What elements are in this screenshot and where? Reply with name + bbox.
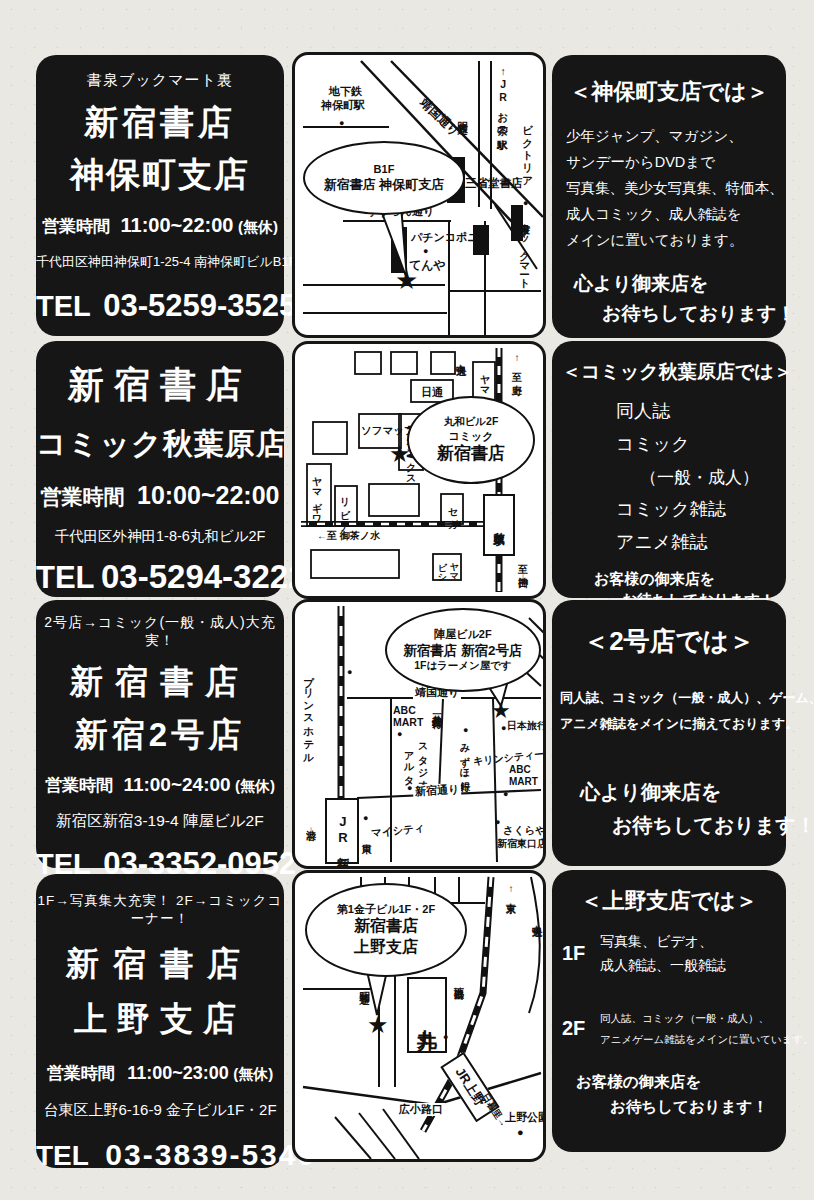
pachinko-dot: ● xyxy=(423,247,428,256)
desc-item: アニメ雑誌 xyxy=(562,526,776,559)
balloon-floor: B1F xyxy=(374,162,395,176)
map-label-shinjuku-dori: 新宿通り xyxy=(413,783,462,798)
store-tagline: 2号店→コミック(一般・成人)大充実！ xyxy=(36,614,284,650)
mycity-dot: ● xyxy=(363,814,368,823)
store-location-star: ★ xyxy=(389,442,411,466)
abc-mart2-dot: ● xyxy=(503,790,508,799)
floor2-line: アニメゲーム雑誌をメインに置いています。 xyxy=(600,1029,814,1050)
map-label-subway-line: 地下鉄 xyxy=(329,85,362,98)
map-label-shosen-bookmart: 書泉ブックマート xyxy=(519,215,531,283)
hours-value: 11:00~22:00 xyxy=(121,214,234,236)
map-label-yamabishi-1: ヤマ xyxy=(449,556,459,579)
map-balloon-jimbocho: B1F 新宿書店 神保町支店 xyxy=(303,141,465,215)
map-label-yamabishi-2: ビシ xyxy=(437,556,447,578)
balloon-note: 1Fはラーメン屋です xyxy=(414,659,512,673)
ueno-park-dot: ● xyxy=(517,1127,524,1138)
store-name-line1: 新宿書店 xyxy=(36,361,284,410)
balloon-store-name: 新宿書店 新宿2号店 xyxy=(403,642,522,660)
map-label-akihabara-station: 秋葉原駅 xyxy=(493,523,506,527)
hours-label: 営業時間 xyxy=(42,217,110,236)
balloon-building: 丸和ビル2F xyxy=(444,415,499,429)
closing-line2: お待ちしております！ xyxy=(566,301,772,327)
map-label-to-ochanomizu: ←至 御茶ノ水 xyxy=(317,530,380,542)
map-label-ueno-park: 上野公園 xyxy=(505,1111,546,1124)
hours-value: 11:00~24:00 xyxy=(123,774,230,795)
hours-note: (無休) xyxy=(235,777,275,794)
tel-label: TEL xyxy=(36,1140,89,1171)
prince-dot: ● xyxy=(347,668,352,677)
map-label-jr-shinjuku: JR新宿 xyxy=(335,814,350,848)
map-label-pachinko-pony: パチンコポニー xyxy=(411,231,490,244)
map-label-nittsu: 日通 xyxy=(421,386,443,399)
map-label-mizuho-bank: みずほ銀行 xyxy=(459,736,471,775)
desc-line: アニメ雑誌をメインに揃えております。 xyxy=(560,711,778,737)
closing-line1: 心より御来店を xyxy=(566,271,772,297)
desc-heading: ＜神保町支店では＞ xyxy=(566,77,772,107)
store-location-star: ★ xyxy=(367,1013,389,1037)
map-label-showa-dori: 昭和通り xyxy=(359,983,371,999)
tel-label: TEL xyxy=(36,560,95,595)
store-name-line2: 神保町支店 xyxy=(36,152,284,198)
store-address: 新宿区新宿3-19-4 陣屋ビル2F xyxy=(36,811,284,832)
balloon-store-name: 新宿書店 xyxy=(437,443,505,465)
hours-value: 10:00~22:00 xyxy=(137,481,279,509)
map-label-nihon-ryoko: 日本旅行 xyxy=(507,720,546,732)
mizuho-dot: ● xyxy=(463,726,468,735)
closing-line1: お客様の御来店を xyxy=(562,570,776,589)
store-address: 千代田区神田神保町1-25-4 南神保町ビルB1F xyxy=(36,253,284,271)
closing-line2: お待ちしております！ xyxy=(562,1097,776,1118)
map-label-mitsui-sumitomo-bank: 三井住友銀行 xyxy=(431,706,443,712)
hours-label: 営業時間 xyxy=(47,1064,115,1083)
store-info-panel-ueno: 1F→写真集大充実！ 2F→コミックコーナー！ 新宿書店 上野支店 営業時間 1… xyxy=(36,874,284,1168)
map-label-sakuraya-branch: 新宿東口店 xyxy=(497,838,546,850)
desc-item: コミック雑誌 xyxy=(562,493,776,526)
floor1-line: 写真集、ビデオ、 xyxy=(600,930,726,954)
desc-line: メインに置いております。 xyxy=(566,227,772,253)
balloon-building: 第1金子ビル1F・2F xyxy=(337,902,435,916)
store-tagline: 1F→写真集大充実！ 2F→コミックコーナー！ xyxy=(36,892,284,928)
map-balloon-shinjuku2: 陣屋ビル2F 新宿書店 新宿2号店 1Fはラーメン屋です xyxy=(385,608,541,692)
map-ueno: 第1金子ビル1F・2F 新宿書店 上野支店 昭和通り 丸井 地下鉄出口 ● ↑東… xyxy=(292,870,546,1162)
tel-number: 03-5259-3525 xyxy=(103,288,296,323)
desc-item: 同人誌 xyxy=(562,395,776,428)
tel-number: 03-5294-3222 xyxy=(101,558,307,595)
map-label-jr-ochanomizu: ↑JRお茶の水駅 xyxy=(497,65,509,133)
desc-heading: ＜2号店では＞ xyxy=(560,624,778,659)
floor1-label: 1F xyxy=(562,942,600,965)
desc-heading: ＜上野支店では＞ xyxy=(562,886,776,916)
closing-line1: お客様の御来店を xyxy=(562,1072,776,1093)
map-label-marui: 丸井 xyxy=(416,1014,439,1016)
alta-dot: ● xyxy=(407,784,412,793)
map-label-chuo-dori: 中央通 xyxy=(455,356,467,359)
subway-exit-dot: ● xyxy=(443,1033,448,1042)
store-name-line1: 新宿書店 xyxy=(36,100,284,146)
hours-note: (無休) xyxy=(238,218,278,235)
desc-line: 成人コミック、成人雑誌を xyxy=(566,201,772,227)
map-label-abc-mart-2a: ABC xyxy=(509,764,531,776)
store-name-line2: コミック秋葉原店 xyxy=(36,424,284,465)
desc-line: サンデーからDVDまで xyxy=(566,149,772,175)
map-shinjuku2: プリンスホテル ● 靖国通り ABC MART ● 三井住友銀行 スタジオ アル… xyxy=(292,599,546,869)
map-label-to-kanda: 至 神田↓ xyxy=(517,556,529,583)
map-label-subway-exit: 地下鉄出口 xyxy=(453,979,465,984)
map-label-yamagiwa-left: ヤマギワ xyxy=(311,470,323,520)
map-label-victoria: ビクトリア xyxy=(522,117,534,182)
map-balloon-akihabara: 丸和ビル2F コミック 新宿書店 xyxy=(407,396,535,484)
tel-number: 03-3839-5340 xyxy=(105,1138,316,1171)
desc-line: 同人誌、コミック（一般・成人）、ゲーム、 xyxy=(560,685,778,711)
map-label-higashiguchi: 東口 xyxy=(361,836,373,838)
floor1-line: 成人雑誌、一般雑誌 xyxy=(600,954,726,978)
balloon-store-name: 新宿書店 xyxy=(354,916,418,937)
map-balloon-ueno: 第1金子ビル1F・2F 新宿書店 上野支店 xyxy=(305,883,467,977)
map-label-meidai-dori: 明大通り xyxy=(457,113,469,129)
map-jimbocho: 地下鉄 神保町駅 ● 靖国通り ↑JRお茶の水駅 明大通り ビクトリア ● 三省… xyxy=(292,52,546,338)
desc-item: （一般・成人） xyxy=(562,462,776,493)
store-desc-panel-jimbocho: ＜神保町支店では＞ 少年ジャンプ、マガジン、 サンデーからDVDまで 写真集、美… xyxy=(552,55,786,338)
closing-line2: お待ちしております！ xyxy=(560,812,778,839)
desc-line: 写真集、美少女写真集、特価本、 xyxy=(566,175,772,201)
desc-line: 少年ジャンプ、マガジン、 xyxy=(566,123,772,149)
abc-mart-dot: ● xyxy=(397,730,402,739)
store-name-line1: 新宿書店 xyxy=(36,660,284,705)
map-label-abc-mart-1b: MART xyxy=(393,716,423,728)
map-label-to-tokyo: ↑東京 xyxy=(505,883,517,897)
map-label-hirokoji-guchi: 広小路口 xyxy=(397,1103,445,1116)
hours-label: 営業時間 xyxy=(45,776,113,795)
map-label-alta: アルタ xyxy=(403,744,415,781)
map-label-abc-mart-1a: ABC xyxy=(393,704,416,716)
store-desc-panel-akihabara: ＜コミック秋葉原店では＞ 同人誌 コミック （一般・成人） コミック雑誌 アニメ… xyxy=(552,341,786,598)
store-location-star: ★ xyxy=(395,267,418,293)
store-name-line2: 上野支店 xyxy=(36,997,284,1042)
map-label-shibuya: 渋谷↓ xyxy=(305,822,317,836)
balloon-branch-name: 上野支店 xyxy=(354,937,418,958)
balloon-comic: コミック xyxy=(448,429,493,443)
map-label-studio: スタジオ xyxy=(417,736,429,786)
store-info-panel-jimbocho: 書泉ブックマート裏 新宿書店 神保町支店 営業時間 11:00~22:00 (無… xyxy=(36,55,284,336)
station-dot: ● xyxy=(339,119,344,128)
map-label-chuo-dori: 中央通り xyxy=(531,917,543,932)
nihon-ryoko-dot: ● xyxy=(501,724,506,733)
map-label-sega: セガ xyxy=(447,500,459,525)
closing-line1: 心より御来店を xyxy=(560,779,778,806)
store-info-panel-shinjuku2: 2号店→コミック(一般・成人)大充実！ 新宿書店 新宿2号店 営業時間 11:0… xyxy=(36,600,284,868)
map-label-abc-mart-2b: MART xyxy=(509,776,538,788)
hours-note: (無休) xyxy=(233,1065,273,1082)
hours-label: 営業時間 xyxy=(41,485,125,508)
store-name-line2: 新宿2号店 xyxy=(36,713,284,758)
store-info-panel-akihabara: 新宿書店 コミック秋葉原店 営業時間 10:00~22:00 千代田区外神田1-… xyxy=(36,341,284,597)
map-label-livina: リビナ xyxy=(339,490,351,527)
store-name-line1: 新宿書店 xyxy=(36,942,284,987)
store-desc-panel-ueno: ＜上野支店では＞ 1F 写真集、ビデオ、 成人雑誌、一般雑誌 2F 同人誌、コミ… xyxy=(552,870,786,1152)
map-akihabara: 中央通 ヤマギワ ↑至 上野 山手線 日通 ラオックス ソフマップ ヤマギワ リ… xyxy=(292,341,546,599)
map-label-prince-hotel: プリンスホテル xyxy=(303,668,315,759)
map-label-sakuraya: さくらや xyxy=(503,824,546,836)
balloon-store-name: 新宿書店 神保町支店 xyxy=(324,177,445,194)
akihabara-station-box: 秋葉原駅 xyxy=(483,494,515,556)
tel-label: TEL xyxy=(36,290,91,322)
store-address: 台東区上野6-16-9 金子ビル1F・2F xyxy=(36,1101,284,1120)
balloon-building: 陣屋ビル2F xyxy=(434,627,491,641)
map-label-to-ueno: ↑至 上野 xyxy=(511,352,523,379)
sakuraya-dot: ● xyxy=(495,818,500,827)
store-tagline: 書泉ブックマート裏 xyxy=(36,71,284,90)
victoria-dot: ● xyxy=(523,199,528,208)
store-address: 千代田区外神田1-8-6丸和ビル2F xyxy=(36,527,284,546)
marui-box: 丸井 xyxy=(407,977,447,1053)
floor2-line: 同人誌、コミック（一般・成人）、 xyxy=(600,1008,814,1029)
store-desc-panel-shinjuku2: ＜2号店では＞ 同人誌、コミック（一般・成人）、ゲーム、 アニメ雑誌をメインに揃… xyxy=(552,600,786,866)
map-label-sanseido: 三省堂書店 xyxy=(465,177,523,190)
hours-value: 11:00~23:00 xyxy=(127,1063,229,1083)
store-location-star: ★ xyxy=(491,700,511,722)
desc-heading: ＜コミック秋葉原店では＞ xyxy=(562,359,776,385)
floor2-label: 2F xyxy=(562,1017,600,1040)
map-label-jimbocho-station: 神保町駅 xyxy=(321,99,365,112)
jr-shinjuku-station-box: JR新宿 xyxy=(325,798,359,864)
desc-item: コミック xyxy=(562,428,776,461)
